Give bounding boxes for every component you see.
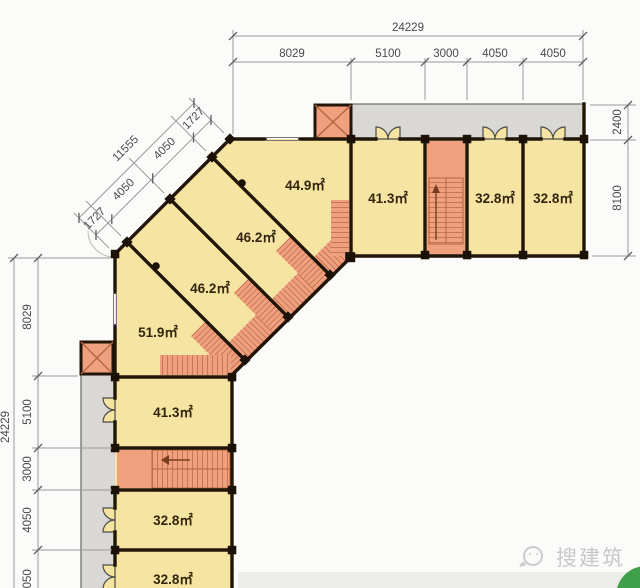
dim-value: 5100 <box>375 48 401 60</box>
room-label: 41.3㎡ <box>368 190 408 206</box>
dim-value: 8029 <box>279 48 305 60</box>
dim-value: 3000 <box>433 48 459 60</box>
watermark-brand: 搜建筑 <box>556 547 625 570</box>
dim-value: 24229 <box>0 411 12 443</box>
room-label: 46.2㎡ <box>236 229 276 245</box>
dim-value: 4050 <box>22 569 34 588</box>
room-label: 32.8㎡ <box>533 190 573 206</box>
dim-value: 4050 <box>22 507 34 533</box>
dim-value: 8029 <box>22 304 34 330</box>
dim-value: 4050 <box>482 48 508 60</box>
room-label: 51.9㎡ <box>138 324 178 340</box>
dim-value: 8100 <box>612 185 624 211</box>
dim-value: 3000 <box>22 456 34 482</box>
room-label: 46.2㎡ <box>190 280 230 296</box>
floor-plan-svg: 41.3㎡ 32.8㎡ 32.8㎡ 44.9㎡ 46.2㎡ 46.2㎡ 51.9… <box>0 0 640 588</box>
dim-value: 2400 <box>612 109 624 135</box>
watermark-band <box>238 572 640 588</box>
elevator-top <box>315 105 351 139</box>
dim-value: 5100 <box>22 399 34 425</box>
room-label: 32.8㎡ <box>475 190 515 206</box>
dim-value: 4050 <box>540 48 566 60</box>
floor-plan-screenshot: 41.3㎡ 32.8㎡ 32.8㎡ 44.9㎡ 46.2㎡ 46.2㎡ 51.9… <box>0 0 640 588</box>
dim-value: 24229 <box>392 22 424 34</box>
elevator-left <box>81 342 113 374</box>
room-label: 32.8㎡ <box>153 571 193 587</box>
room-label: 32.8㎡ <box>153 512 193 528</box>
room-label: 44.9㎡ <box>285 177 325 193</box>
room-label: 41.3㎡ <box>153 404 193 420</box>
